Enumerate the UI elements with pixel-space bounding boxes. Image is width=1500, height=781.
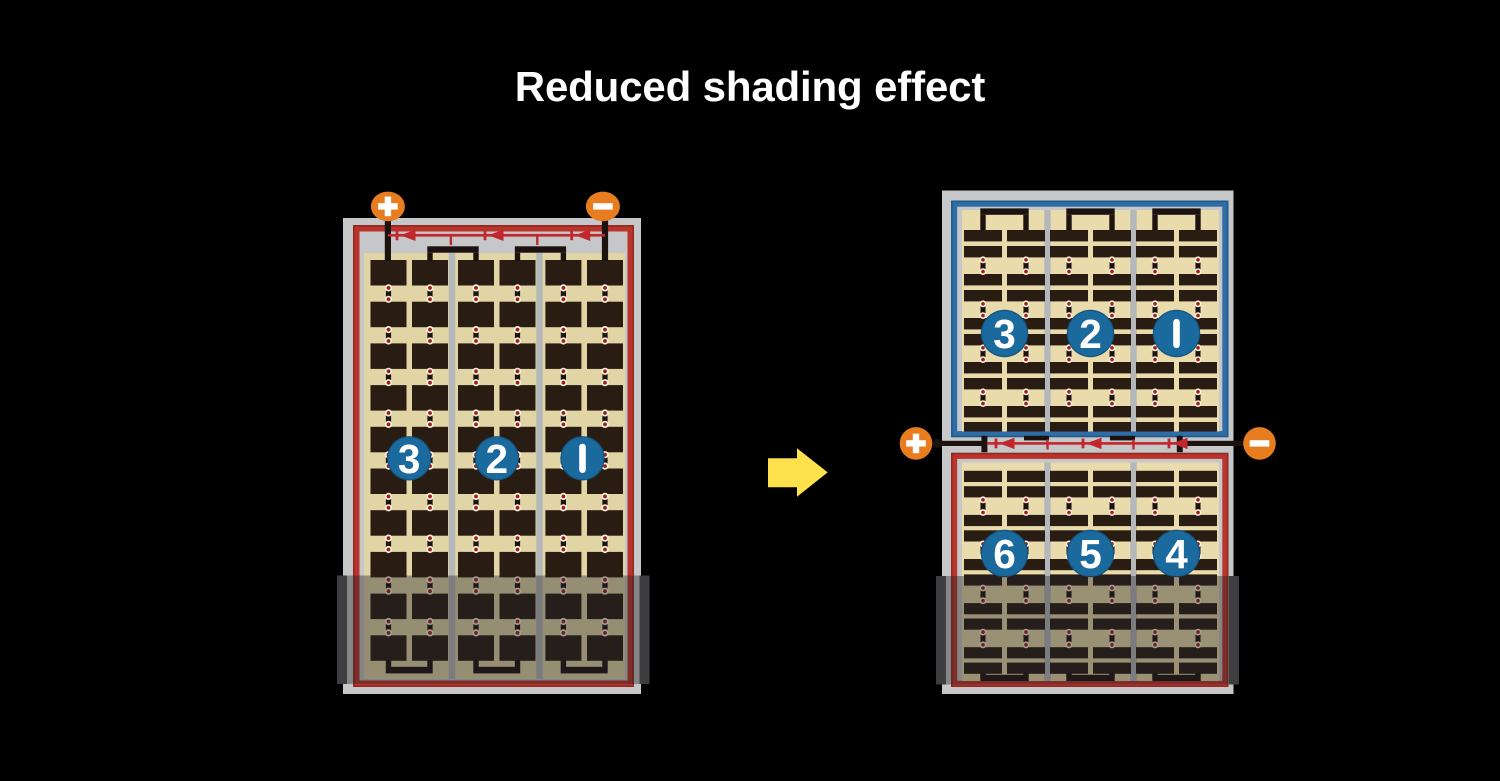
- svg-text:2: 2: [1079, 311, 1102, 357]
- svg-text:3: 3: [398, 436, 421, 482]
- svg-text:2: 2: [486, 436, 509, 482]
- svg-text:5: 5: [1079, 531, 1102, 577]
- svg-text:4: 4: [1165, 531, 1188, 577]
- svg-text:6: 6: [993, 531, 1016, 577]
- svg-text:Reduced shading effect: Reduced shading effect: [515, 63, 986, 110]
- svg-text:3: 3: [993, 311, 1016, 357]
